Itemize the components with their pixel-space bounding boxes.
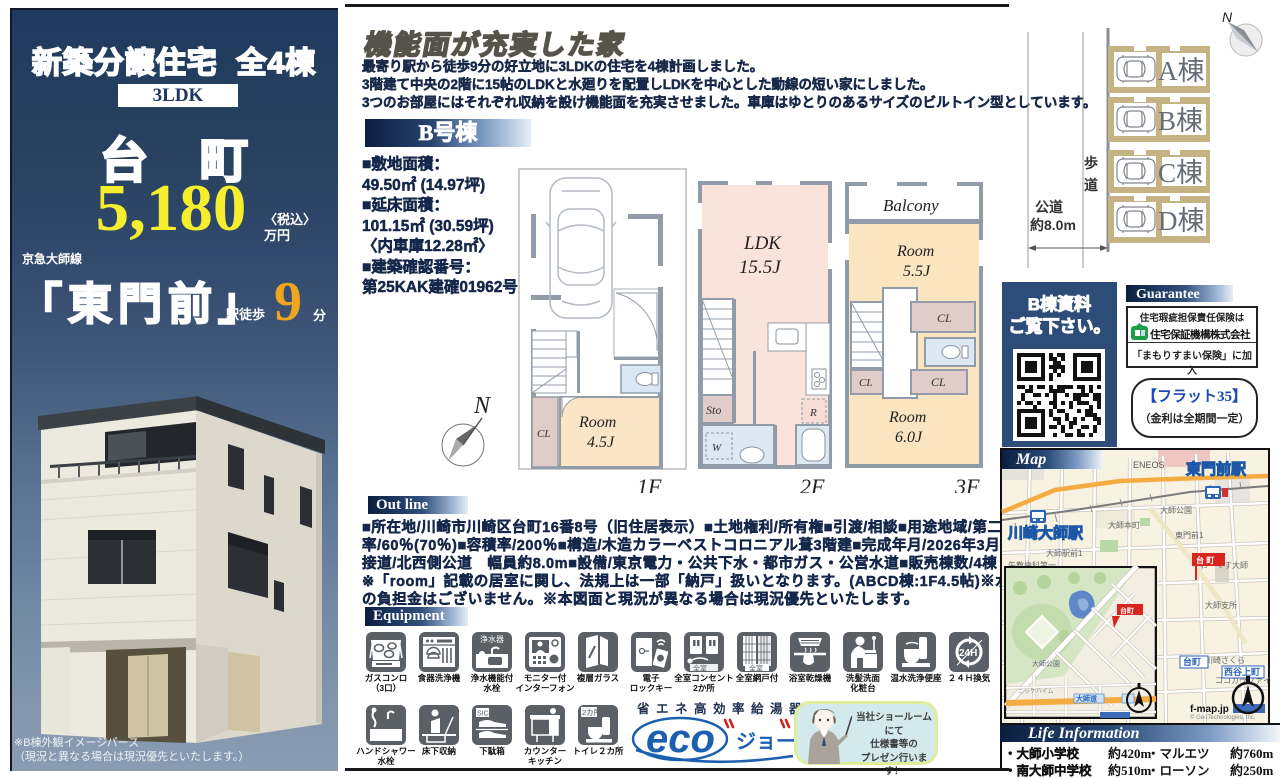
svg-text:A棟: A棟 <box>1158 56 1205 86</box>
svg-text:ジョーズ: ジョーズ <box>736 729 798 753</box>
svg-text:f-map.jp: f-map.jp <box>1190 704 1229 715</box>
svg-text:西谷上町: 西谷上町 <box>1224 666 1260 677</box>
svg-text:LDK: LDK <box>743 233 782 254</box>
svg-text:大師駅前1: 大師駅前1 <box>1046 548 1083 558</box>
svg-text:W: W <box>712 442 722 454</box>
svg-text:台 町: 台 町 <box>1196 555 1214 565</box>
svg-text:CL: CL <box>931 375 946 389</box>
svg-text:CL: CL <box>537 428 550 440</box>
svg-text:D棟: D棟 <box>1158 206 1205 236</box>
svg-text:歩: 歩 <box>1084 155 1098 171</box>
svg-text:東門前1: 東門前1 <box>1175 530 1204 540</box>
svg-text:C棟: C棟 <box>1158 158 1203 188</box>
svg-text:2カ所: 2カ所 <box>582 707 602 717</box>
svg-text:川崎大師駅: 川崎大師駅 <box>1007 524 1084 542</box>
svg-text:N: N <box>1222 9 1233 25</box>
svg-text:eco: eco <box>646 717 715 761</box>
svg-text:R: R <box>809 407 817 419</box>
svg-text:B棟: B棟 <box>1158 106 1203 136</box>
svg-text:大師道: 大師道 <box>1076 694 1097 703</box>
svg-text:Sto: Sto <box>706 403 721 417</box>
svg-text:全室: 全室 <box>693 664 707 673</box>
svg-text:大師支所: 大師支所 <box>1205 600 1237 610</box>
svg-text:台町: 台町 <box>1183 656 1201 667</box>
svg-text:大師公園: 大師公園 <box>1160 505 1192 515</box>
svg-text:大師本町: 大師本町 <box>1108 520 1140 530</box>
svg-text:N: N <box>473 393 492 419</box>
svg-text:Balcony: Balcony <box>883 196 939 215</box>
svg-text:川崎さくら: 川崎さくら <box>1205 655 1245 665</box>
svg-text:CL: CL <box>937 311 952 325</box>
svg-text:CL: CL <box>859 377 872 389</box>
svg-text:ニッケハイム: ニッケハイム <box>1018 688 1054 695</box>
svg-text:3F: 3F <box>954 474 980 493</box>
svg-text:浄水器: 浄水器 <box>480 634 504 644</box>
svg-text:6.0J: 6.0J <box>895 429 923 446</box>
svg-text:4.5J: 4.5J <box>587 434 615 451</box>
svg-text:Room: Room <box>888 409 926 426</box>
svg-text:1F: 1F <box>637 474 662 493</box>
svg-text:2F: 2F <box>800 474 825 493</box>
svg-text:道: 道 <box>1084 177 1098 193</box>
svg-text:© GeoTechnologies, Inc.: © GeoTechnologies, Inc. <box>1190 714 1256 721</box>
svg-text:SIC: SIC <box>477 711 489 718</box>
svg-text:大師公園: 大師公園 <box>1032 659 1060 668</box>
svg-text:Room: Room <box>578 414 616 431</box>
svg-text:東門前駅: 東門前駅 <box>1186 460 1247 478</box>
svg-text:15.5J: 15.5J <box>739 257 782 278</box>
svg-text:台町: 台町 <box>1120 606 1134 615</box>
svg-text:約8.0m: 約8.0m <box>1030 217 1076 233</box>
svg-text:Room: Room <box>896 243 934 260</box>
svg-text:5.5J: 5.5J <box>903 263 931 280</box>
svg-text:ENEOS: ENEOS <box>1133 460 1165 470</box>
svg-text:全室: 全室 <box>749 664 763 673</box>
svg-text:公道: 公道 <box>1035 199 1063 215</box>
